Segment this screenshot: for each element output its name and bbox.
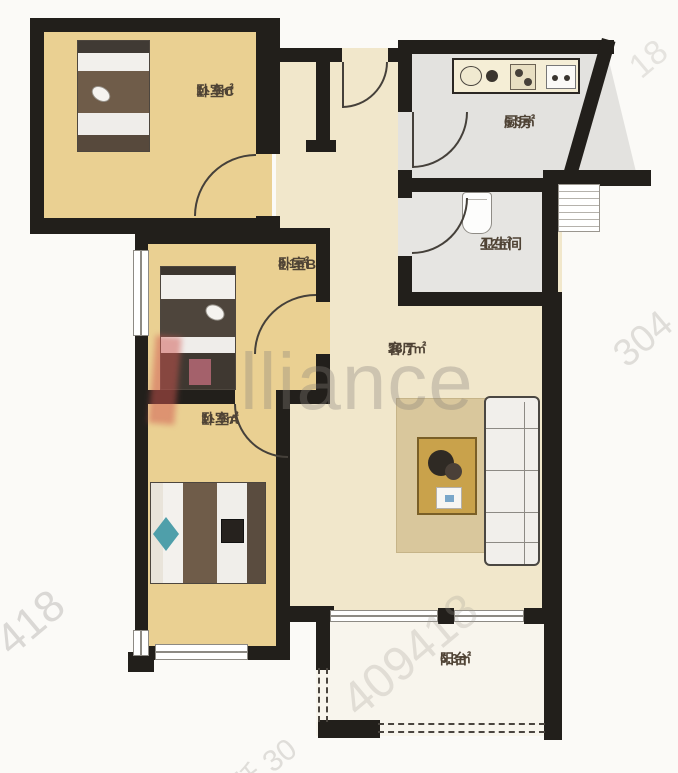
wall-segment	[135, 390, 235, 404]
wall-segment	[398, 292, 558, 306]
bed-pillows	[161, 275, 235, 299]
wall-segment	[276, 48, 342, 62]
bed-sheet	[161, 337, 235, 353]
window	[133, 630, 149, 656]
kettle-icon	[486, 70, 498, 82]
bed-headboard	[161, 267, 235, 275]
window	[133, 250, 149, 336]
bed-foot	[247, 483, 266, 583]
window	[330, 610, 438, 622]
sofa-cushion-divider	[486, 428, 538, 429]
room-area: 6.3㎡	[440, 651, 471, 667]
floor-plan: 卧室C 11.5㎡ 卧室B 8.1㎡ 卧室A 11.5㎡ 厨房 6.3㎡ 卫生间…	[0, 0, 678, 773]
wall-segment	[316, 62, 330, 140]
wall-segment	[135, 336, 148, 632]
room-area: 11.5㎡	[196, 83, 234, 99]
bed-headboard	[78, 41, 149, 53]
bed-bedroom-c	[77, 40, 150, 152]
cooktop-icon	[546, 65, 576, 89]
wall-segment	[542, 178, 558, 306]
wall-segment	[248, 646, 290, 660]
wall-segment	[306, 140, 336, 152]
wall-segment	[256, 18, 280, 154]
wall-segment	[398, 178, 412, 198]
wall-segment	[542, 292, 562, 616]
bed-bedroom-b	[160, 266, 236, 390]
wall-segment	[135, 230, 148, 250]
wall-segment	[398, 54, 412, 112]
table-tray	[436, 487, 462, 509]
bed-sheet	[78, 113, 149, 135]
balcony-open-edge	[318, 668, 328, 722]
sofa-cushion-divider	[486, 512, 538, 513]
bed-blanket	[78, 71, 149, 113]
bed-red-cushion	[189, 359, 211, 385]
bed-pillows	[78, 53, 149, 71]
bed-bedroom-a	[150, 482, 266, 584]
sofa-cushion-divider	[486, 542, 538, 543]
sofa-cushion-divider	[486, 470, 538, 471]
sofa-backrest-line	[524, 402, 525, 564]
wall-segment	[288, 390, 330, 404]
sink-icon	[460, 66, 482, 86]
kitchen-counter	[452, 58, 580, 94]
wall-segment	[398, 40, 614, 54]
tv-icon	[221, 519, 244, 543]
ac-platform-grille	[558, 184, 600, 232]
wall-segment	[135, 228, 330, 244]
room-area: 8.1㎡	[278, 256, 309, 272]
tray-item	[445, 495, 454, 502]
window	[155, 644, 248, 660]
wall-segment	[30, 18, 44, 232]
wall-segment	[316, 608, 330, 670]
room-area: 6.3㎡	[504, 114, 535, 130]
stove-icon	[510, 64, 536, 90]
bed-foot	[78, 135, 149, 152]
balcony-open-edge	[378, 723, 545, 733]
bed-blanket	[183, 483, 217, 583]
window	[454, 610, 524, 622]
wall-segment	[316, 230, 330, 302]
coffee-table	[417, 437, 477, 515]
room-area: 4.2㎡	[480, 236, 511, 252]
watermark-number: 304	[606, 303, 678, 377]
table-decor-icon	[445, 463, 462, 480]
sofa	[484, 396, 540, 566]
balcony-floor	[316, 610, 562, 736]
exterior-notch	[290, 622, 318, 662]
watermark-number: 418	[0, 580, 75, 665]
watermark-number: 18	[622, 32, 676, 86]
room-area: 28.7㎡	[388, 341, 426, 357]
wall-segment	[544, 608, 562, 740]
wall-segment	[524, 608, 546, 624]
watermark-number: 曹跃 30	[197, 725, 304, 773]
wall-segment	[318, 720, 380, 738]
room-area: 11.5㎡	[201, 411, 239, 427]
wall-segment	[30, 18, 272, 32]
bed-blanket	[161, 299, 235, 337]
wall-segment	[438, 608, 454, 624]
